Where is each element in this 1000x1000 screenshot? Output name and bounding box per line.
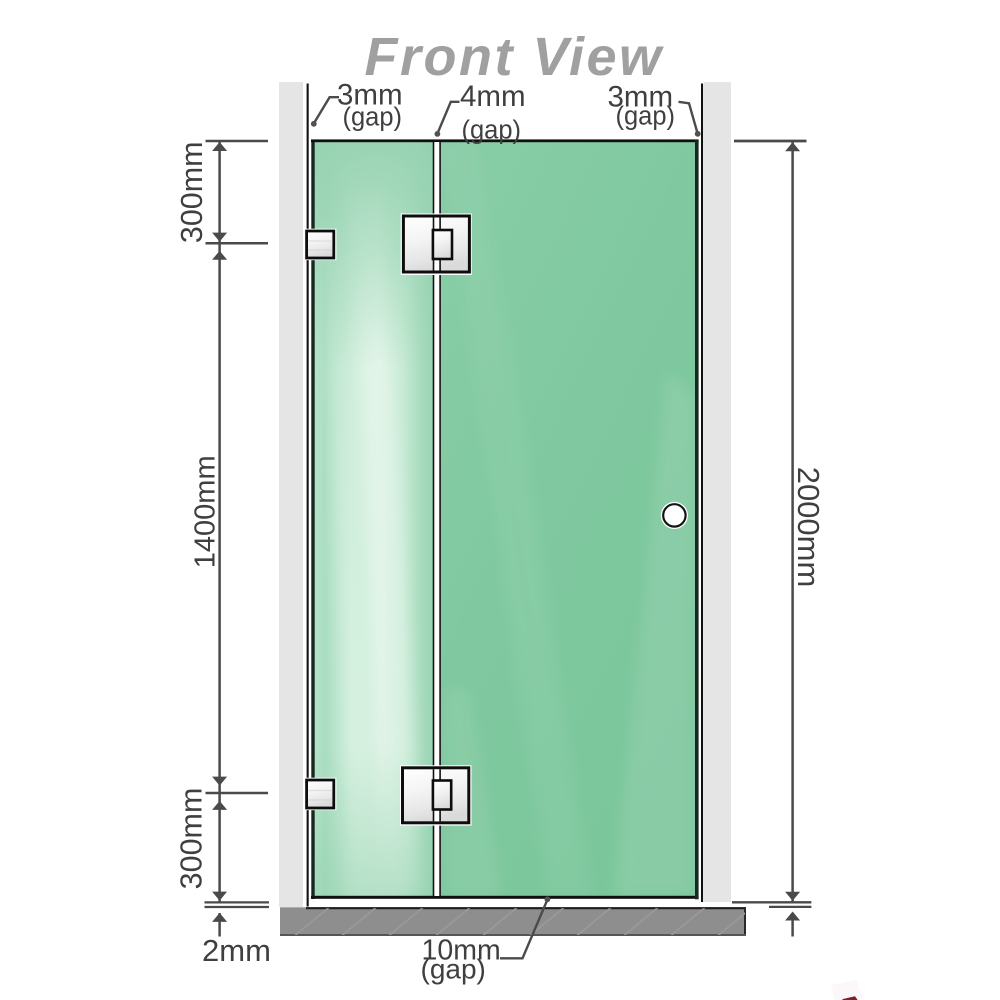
svg-text:1400mm: 1400mm <box>190 455 222 568</box>
svg-text:300mm: 300mm <box>175 788 209 890</box>
svg-text:2000mm: 2000mm <box>791 467 826 588</box>
svg-text:(gap): (gap) <box>462 117 522 145</box>
svg-text:2mm: 2mm <box>202 933 271 968</box>
svg-text:(gap): (gap) <box>616 103 676 131</box>
svg-text:4mm: 4mm <box>460 80 526 113</box>
svg-text:Front View: Front View <box>364 27 664 87</box>
svg-text:(gap): (gap) <box>421 954 486 985</box>
svg-text:300mm: 300mm <box>175 141 209 243</box>
svg-text:(gap): (gap) <box>343 104 403 132</box>
